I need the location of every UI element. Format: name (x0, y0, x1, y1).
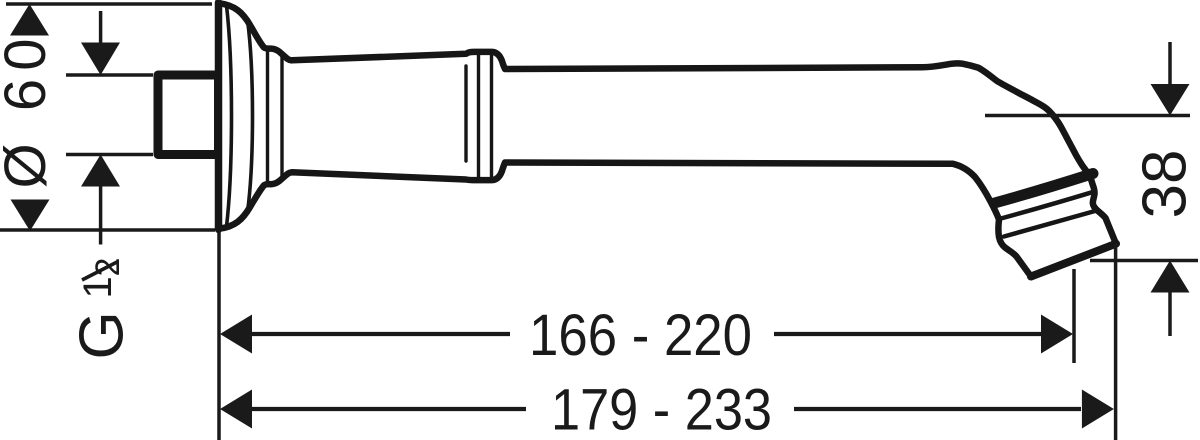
svg-text:179 - 233: 179 - 233 (551, 378, 772, 440)
svg-text:G: G (68, 311, 137, 359)
svg-text:166 - 220: 166 - 220 (529, 303, 752, 368)
svg-text:38: 38 (1131, 150, 1200, 219)
